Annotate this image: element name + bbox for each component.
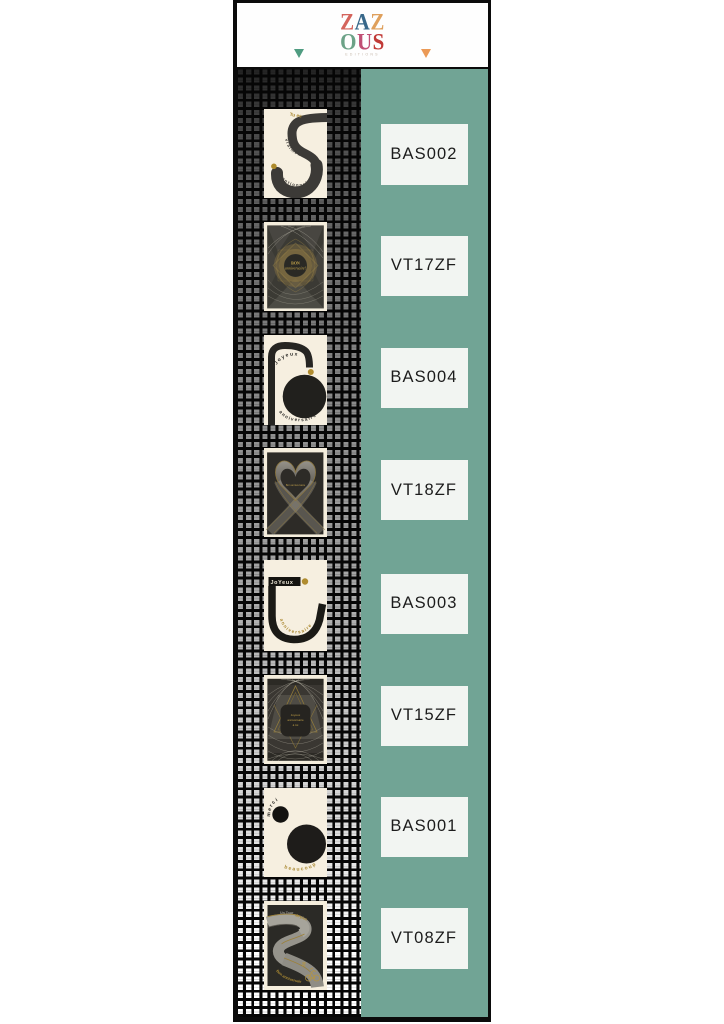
svg-text:Bon anniversaire: Bon anniversaire <box>285 483 305 487</box>
svg-text:J o y e u x: J o y e u x <box>273 351 297 366</box>
svg-text:OUS: OUS <box>340 28 385 54</box>
svg-text:a n n i v e r s a i r e: a n n i v e r s a i r e <box>279 618 312 635</box>
svg-text:Un Tour: Un Tour <box>280 911 294 915</box>
svg-text:EDITIONS: EDITIONS <box>345 52 380 56</box>
svg-text:Joyeux: Joyeux <box>290 713 300 717</box>
svg-text:Tu es: Tu es <box>289 112 302 120</box>
svg-text:à toi: à toi <box>292 723 298 727</box>
svg-text:b e a u c o u p: b e a u c o u p <box>283 861 317 872</box>
svg-text:JoYeux: JoYeux <box>270 580 293 586</box>
svg-text:anniversaire!: anniversaire! <box>284 265 306 270</box>
svg-text:anniversaire: anniversaire <box>287 718 304 722</box>
